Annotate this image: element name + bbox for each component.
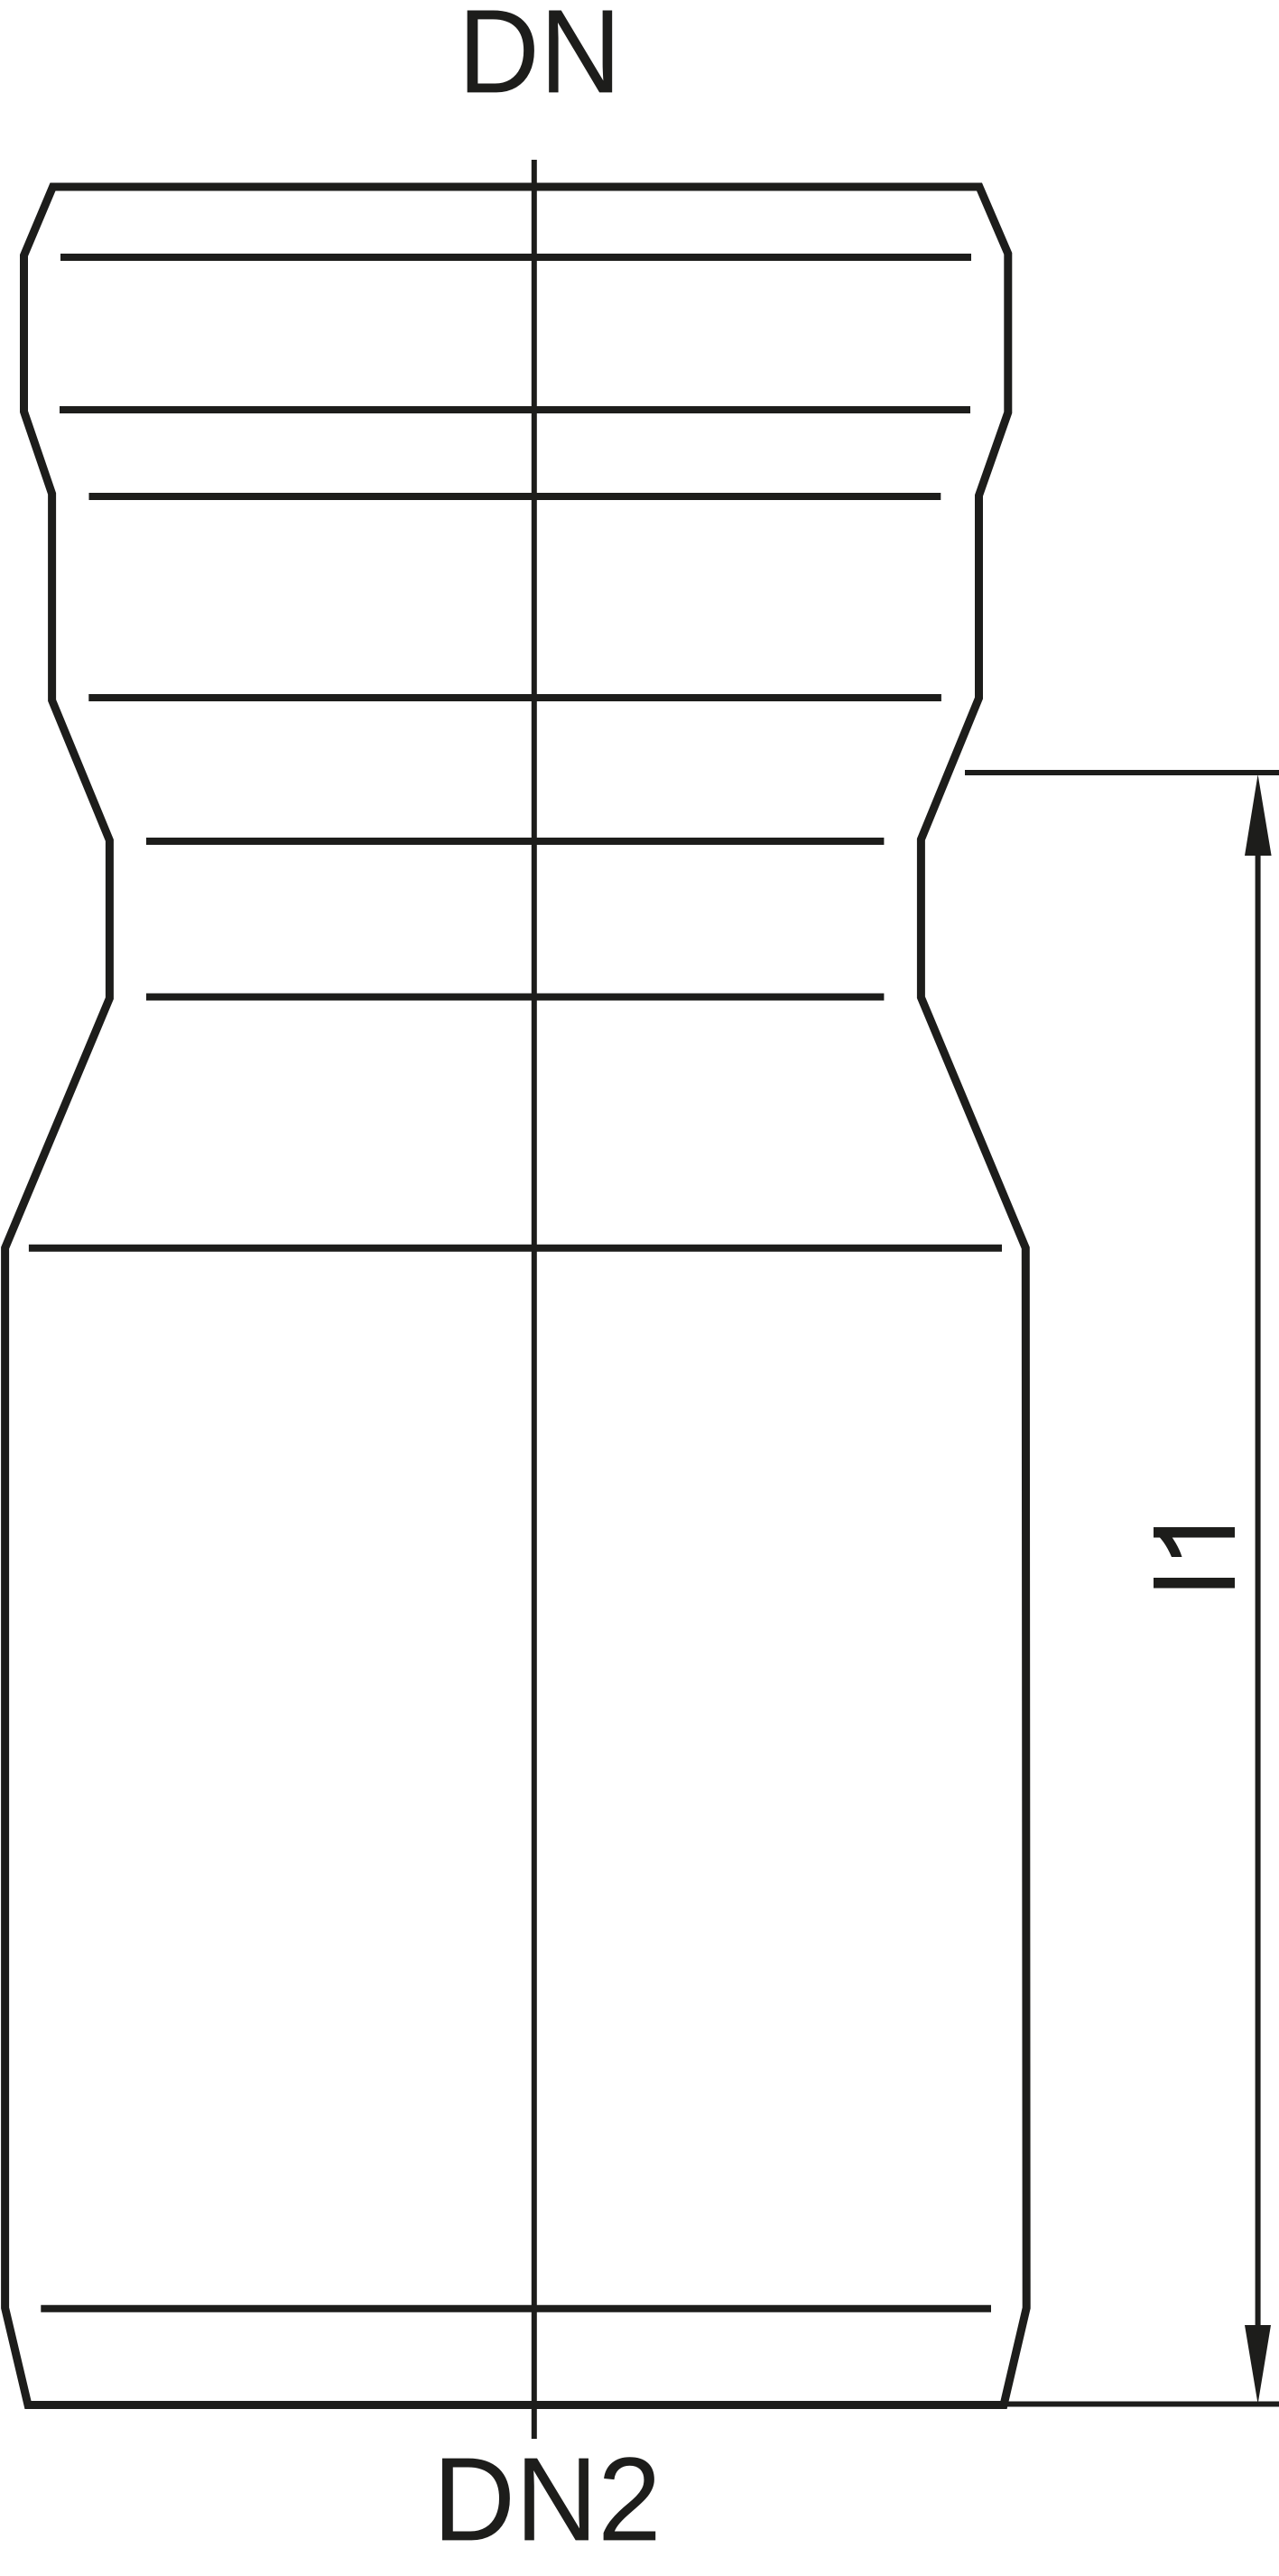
svg-text:DN: DN	[458, 0, 621, 117]
svg-text:DN2: DN2	[433, 2432, 662, 2565]
